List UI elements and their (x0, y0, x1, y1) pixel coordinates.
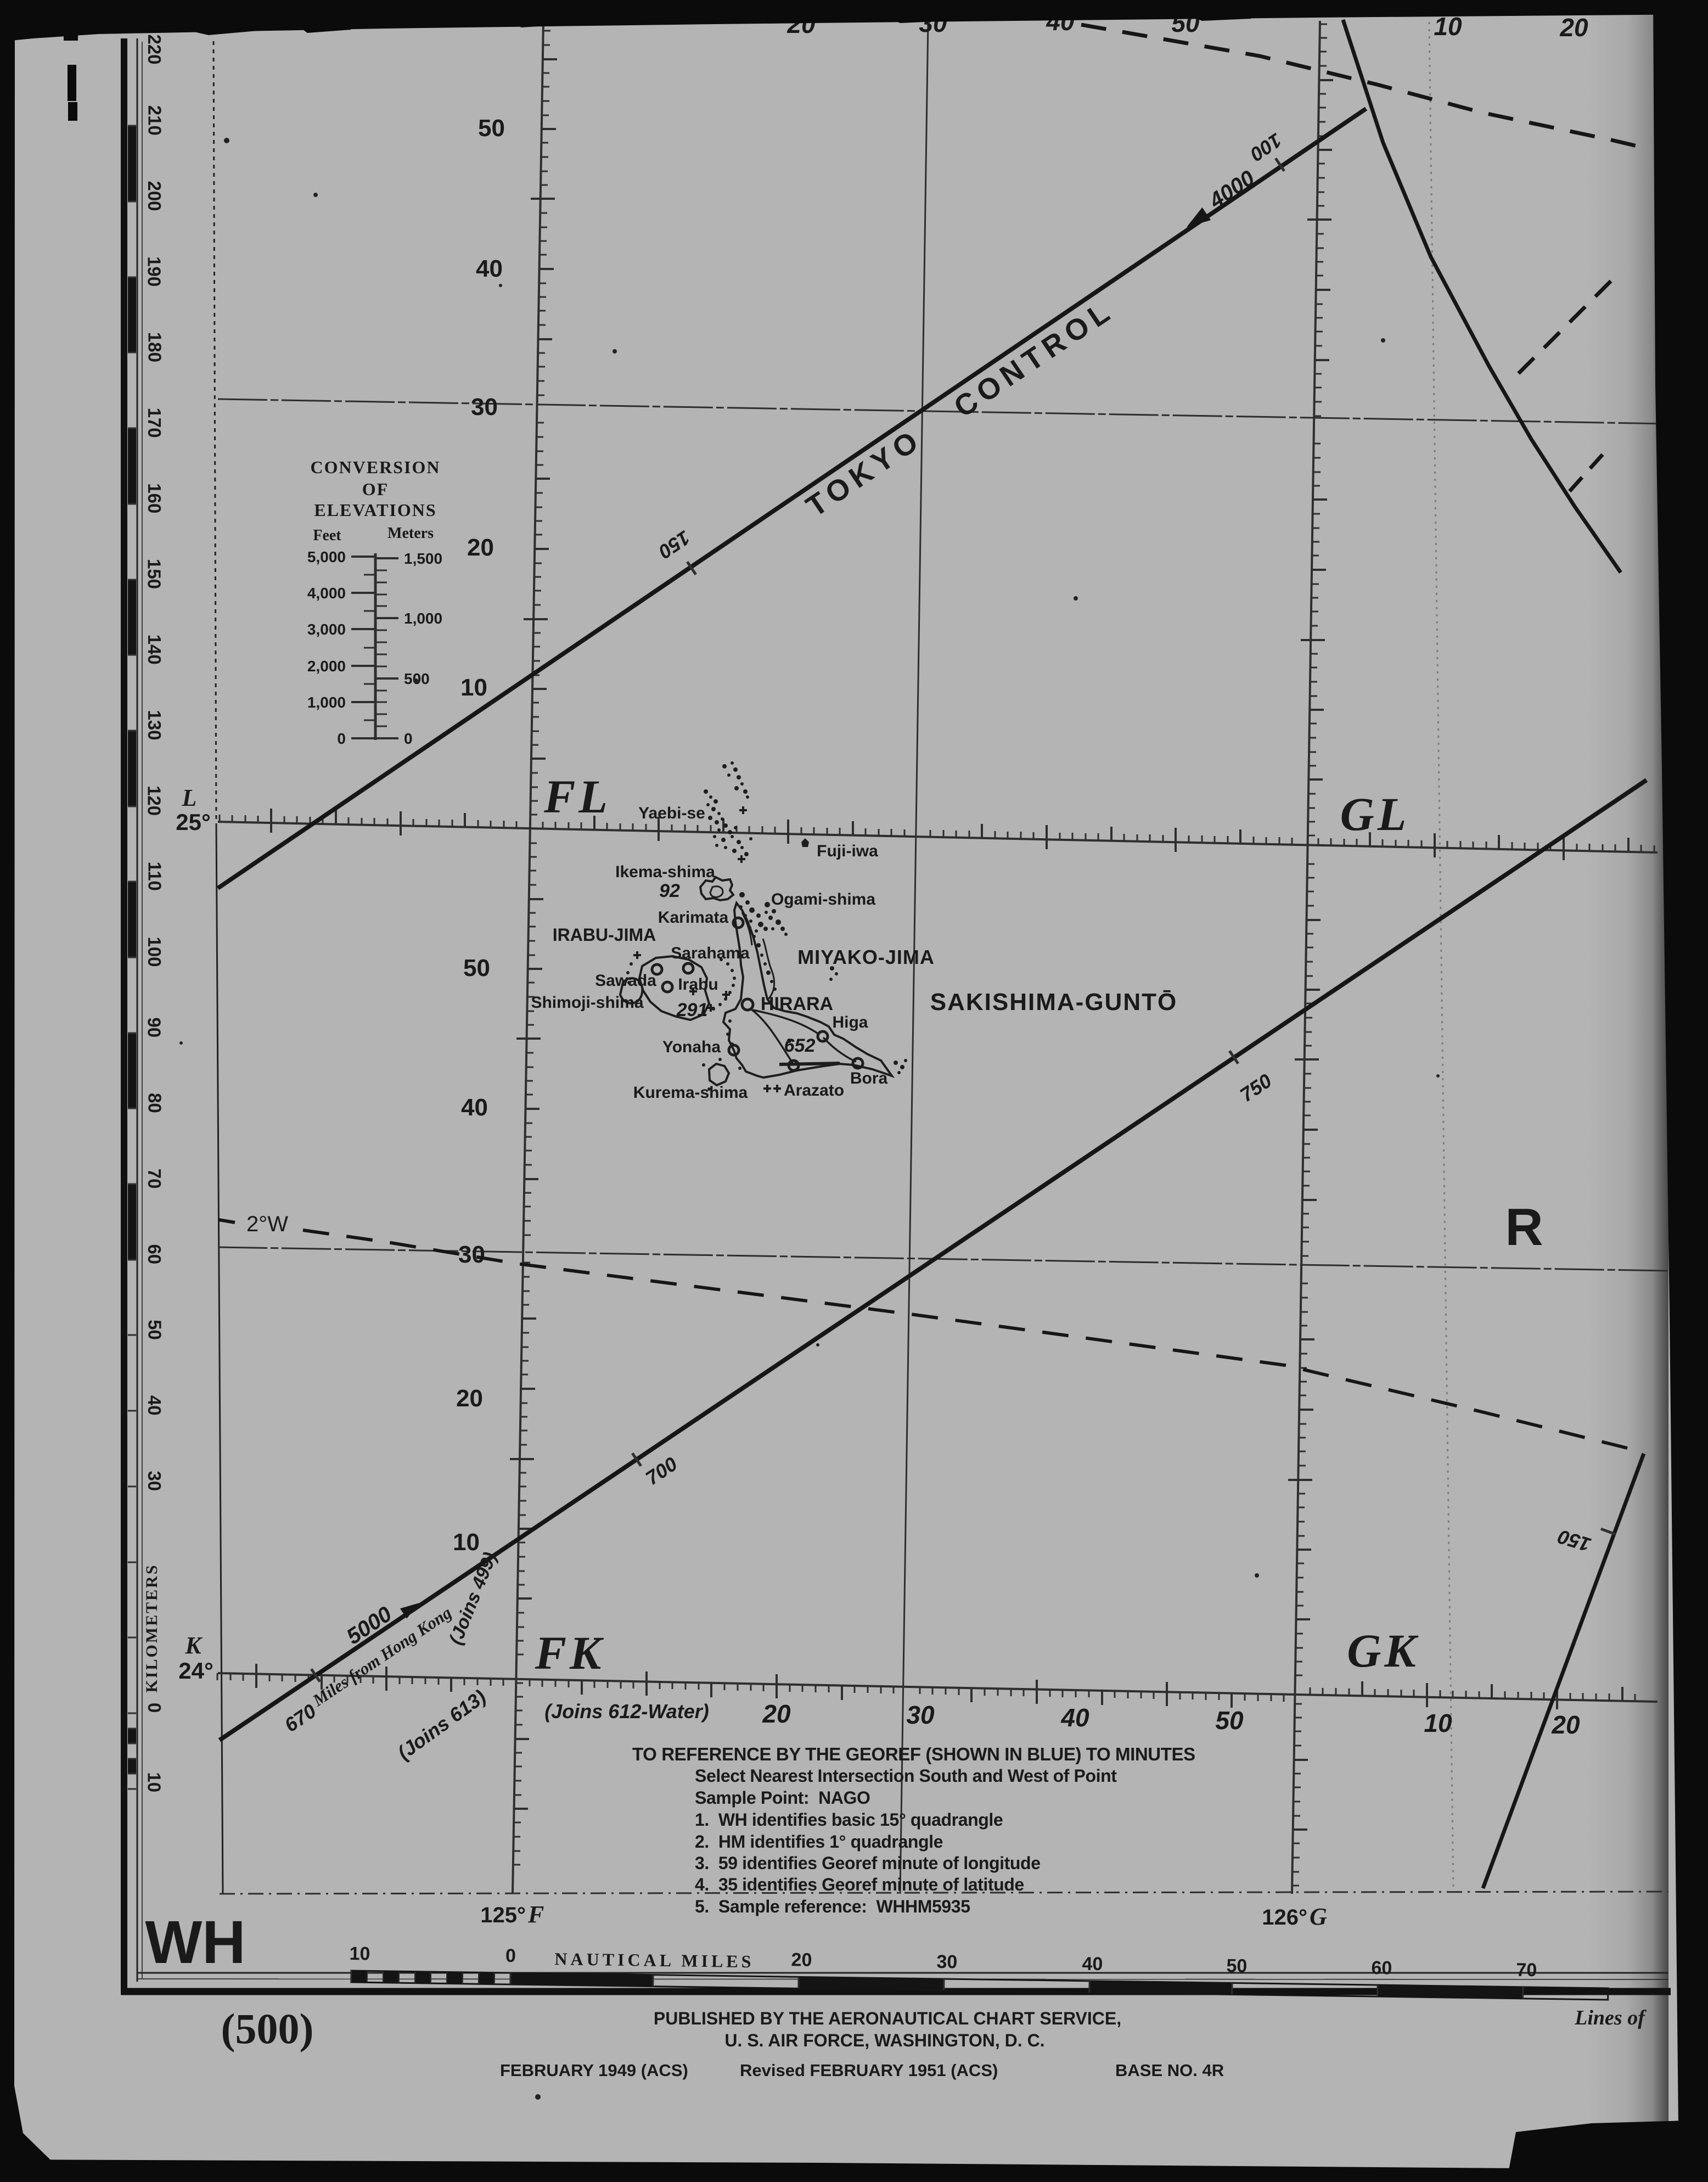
svg-text:200: 200 (144, 181, 165, 211)
svg-text:50: 50 (478, 115, 505, 142)
svg-text:20: 20 (791, 1949, 812, 1971)
svg-text:CONVERSION: CONVERSION (311, 457, 441, 477)
svg-text:PUBLISHED BY THE AERONAUTICAL: PUBLISHED BY THE AERONAUTICAL CHART SERV… (654, 2009, 1121, 2028)
svg-text:125°: 125° (480, 1903, 526, 1927)
svg-text:110: 110 (144, 862, 165, 891)
svg-text:20: 20 (1559, 13, 1588, 42)
svg-text:30: 30 (144, 1471, 165, 1491)
svg-text:40: 40 (1082, 1954, 1103, 1975)
svg-text:5,000: 5,000 (307, 548, 346, 565)
svg-text:HIRARA: HIRARA (761, 994, 833, 1014)
svg-text:5. Sample reference: WHHM593: 5. Sample reference: WHHM5935 (695, 1897, 970, 1916)
svg-text:KILOMETERS: KILOMETERS (143, 1563, 161, 1692)
svg-text:Revised FEBRUARY 1951 (ACS): Revised FEBRUARY 1951 (ACS) (740, 2061, 998, 2080)
svg-text:40: 40 (476, 255, 503, 282)
svg-text:60: 60 (1371, 1957, 1392, 1979)
svg-text:220: 220 (144, 34, 165, 64)
svg-text:40: 40 (1060, 1703, 1089, 1732)
svg-text:Ikema-shima: Ikema-shima (615, 863, 715, 881)
svg-text:170: 170 (144, 408, 165, 438)
svg-text:IRABU-JIMA: IRABU-JIMA (553, 925, 656, 945)
svg-text:Sample Point: NAGO: Sample Point: NAGO (695, 1788, 870, 1808)
svg-text:2. HM identifies 1° quadrangl: 2. HM identifies 1° quadrangle (695, 1832, 943, 1852)
svg-text:652: 652 (784, 1035, 816, 1056)
svg-text:1. WH identifies basic 15° qu: 1. WH identifies basic 15° quadrangle (695, 1810, 1003, 1830)
svg-text:(Joins 612-Water): (Joins 612-Water) (544, 1700, 709, 1723)
svg-text:Meters: Meters (387, 525, 434, 542)
svg-text:10: 10 (1424, 1709, 1452, 1737)
svg-text:210: 210 (144, 105, 165, 136)
svg-text:140: 140 (144, 635, 165, 665)
svg-text:Yonaha: Yonaha (662, 1038, 721, 1056)
svg-text:10: 10 (453, 1529, 480, 1556)
svg-text:Fuji-iwa: Fuji-iwa (817, 842, 878, 860)
svg-text:0: 0 (144, 1703, 165, 1713)
svg-text:SAKISHIMA-GUNTŌ: SAKISHIMA-GUNTŌ (930, 989, 1177, 1016)
svg-text:10: 10 (460, 674, 487, 701)
svg-text:G: G (1310, 1903, 1327, 1930)
svg-text:BASE NO. 4R: BASE NO. 4R (1115, 2061, 1224, 2080)
svg-text:Sawada: Sawada (595, 972, 656, 990)
svg-text:25°: 25° (176, 809, 211, 835)
svg-text:Bora: Bora (850, 1069, 888, 1087)
svg-text:20: 20 (1551, 1710, 1580, 1739)
svg-text:126°: 126° (1262, 1905, 1307, 1929)
svg-text:130: 130 (144, 710, 165, 740)
svg-text:FL: FL (543, 770, 611, 823)
svg-text:30: 30 (471, 394, 498, 420)
svg-text:Lines of: Lines of (1574, 2006, 1647, 2029)
svg-text:150: 150 (144, 559, 165, 589)
svg-text:20: 20 (762, 1699, 791, 1728)
svg-text:40: 40 (144, 1395, 165, 1416)
svg-text:MIYAKO-JIMA: MIYAKO-JIMA (797, 946, 935, 968)
svg-text:0: 0 (337, 730, 346, 747)
svg-text:50: 50 (1215, 1706, 1244, 1735)
svg-text:0: 0 (404, 730, 413, 747)
svg-text:20: 20 (456, 1385, 483, 1412)
svg-text:190: 190 (144, 256, 165, 287)
svg-text:100: 100 (144, 936, 165, 967)
svg-text:Yaebi-se: Yaebi-se (638, 804, 705, 822)
svg-text:0: 0 (505, 1945, 516, 1966)
svg-text:92: 92 (659, 880, 680, 901)
svg-text:1,500: 1,500 (404, 550, 442, 567)
svg-text:20: 20 (467, 534, 494, 561)
svg-text:120: 120 (144, 786, 165, 816)
svg-text:1,000: 1,000 (404, 610, 442, 627)
svg-text:2,000: 2,000 (307, 658, 346, 675)
svg-text:10: 10 (144, 1772, 165, 1792)
svg-text:GL: GL (1340, 788, 1410, 840)
svg-text:40: 40 (461, 1094, 488, 1121)
svg-text:70: 70 (1516, 1960, 1537, 1981)
svg-text:1,000: 1,000 (307, 694, 346, 711)
svg-text:4,000: 4,000 (307, 585, 346, 602)
svg-text:Higa: Higa (832, 1013, 868, 1031)
svg-text:WH: WH (145, 1909, 245, 1976)
svg-text:Select Nearest Intersection So: Select Nearest Intersection South and We… (695, 1766, 1117, 1786)
svg-text:60: 60 (144, 1244, 165, 1264)
svg-text:Karimata: Karimata (658, 908, 729, 927)
svg-text:50: 50 (463, 955, 490, 981)
svg-text:70: 70 (144, 1169, 165, 1189)
svg-text:L: L (182, 784, 197, 811)
svg-text:50: 50 (145, 1320, 165, 1340)
svg-text:Irabu: Irabu (678, 975, 718, 994)
svg-text:Shimoji-shima: Shimoji-shima (531, 994, 643, 1012)
svg-text:Kurema-shima: Kurema-shima (633, 1084, 748, 1102)
svg-text:10: 10 (349, 1943, 370, 1965)
svg-text:Feet: Feet (313, 527, 341, 544)
svg-text:GK: GK (1347, 1624, 1419, 1677)
svg-text:FEBRUARY 1949 (ACS): FEBRUARY 1949 (ACS) (500, 2061, 688, 2080)
svg-text:3,000: 3,000 (307, 621, 346, 638)
svg-text:3. 59 identifies Georef minut: 3. 59 identifies Georef minute of longit… (695, 1853, 1041, 1873)
svg-text:NAUTICAL MILES: NAUTICAL MILES (554, 1949, 755, 1971)
svg-text:24°: 24° (178, 1658, 214, 1684)
svg-text:90: 90 (144, 1017, 165, 1037)
svg-text:FK: FK (535, 1626, 605, 1679)
svg-text:R: R (1505, 1198, 1543, 1257)
svg-text:(500): (500) (221, 2005, 314, 2052)
svg-text:F: F (527, 1901, 544, 1928)
svg-text:Sarahama: Sarahama (671, 944, 750, 962)
svg-text:TO REFERENCE BY THE GEOREF (SH: TO REFERENCE BY THE GEOREF (SHOWN IN BLU… (632, 1744, 1195, 1764)
svg-text:160: 160 (144, 483, 165, 513)
svg-text:U. S. AIR FORCE, WASHINGTON, D: U. S. AIR FORCE, WASHINGTON, D. C. (724, 2030, 1044, 2050)
svg-text:OF: OF (362, 479, 389, 499)
svg-text:291: 291 (676, 1000, 708, 1020)
svg-text:K: K (184, 1632, 203, 1659)
svg-text:2°W: 2°W (246, 1212, 288, 1236)
svg-text:180: 180 (144, 332, 165, 362)
svg-text:30: 30 (936, 1951, 957, 1973)
svg-text:4. 35 identifies Georef minut: 4. 35 identifies Georef minute of latitu… (695, 1875, 1024, 1894)
svg-text:30: 30 (906, 1701, 935, 1729)
svg-text:30: 30 (458, 1241, 485, 1268)
svg-text:Arazato: Arazato (784, 1081, 844, 1100)
svg-text:ELEVATIONS: ELEVATIONS (314, 500, 436, 520)
svg-text:50: 50 (1226, 1955, 1247, 1977)
svg-text:80: 80 (144, 1093, 165, 1113)
svg-text:Ogami-shima: Ogami-shima (771, 890, 875, 908)
